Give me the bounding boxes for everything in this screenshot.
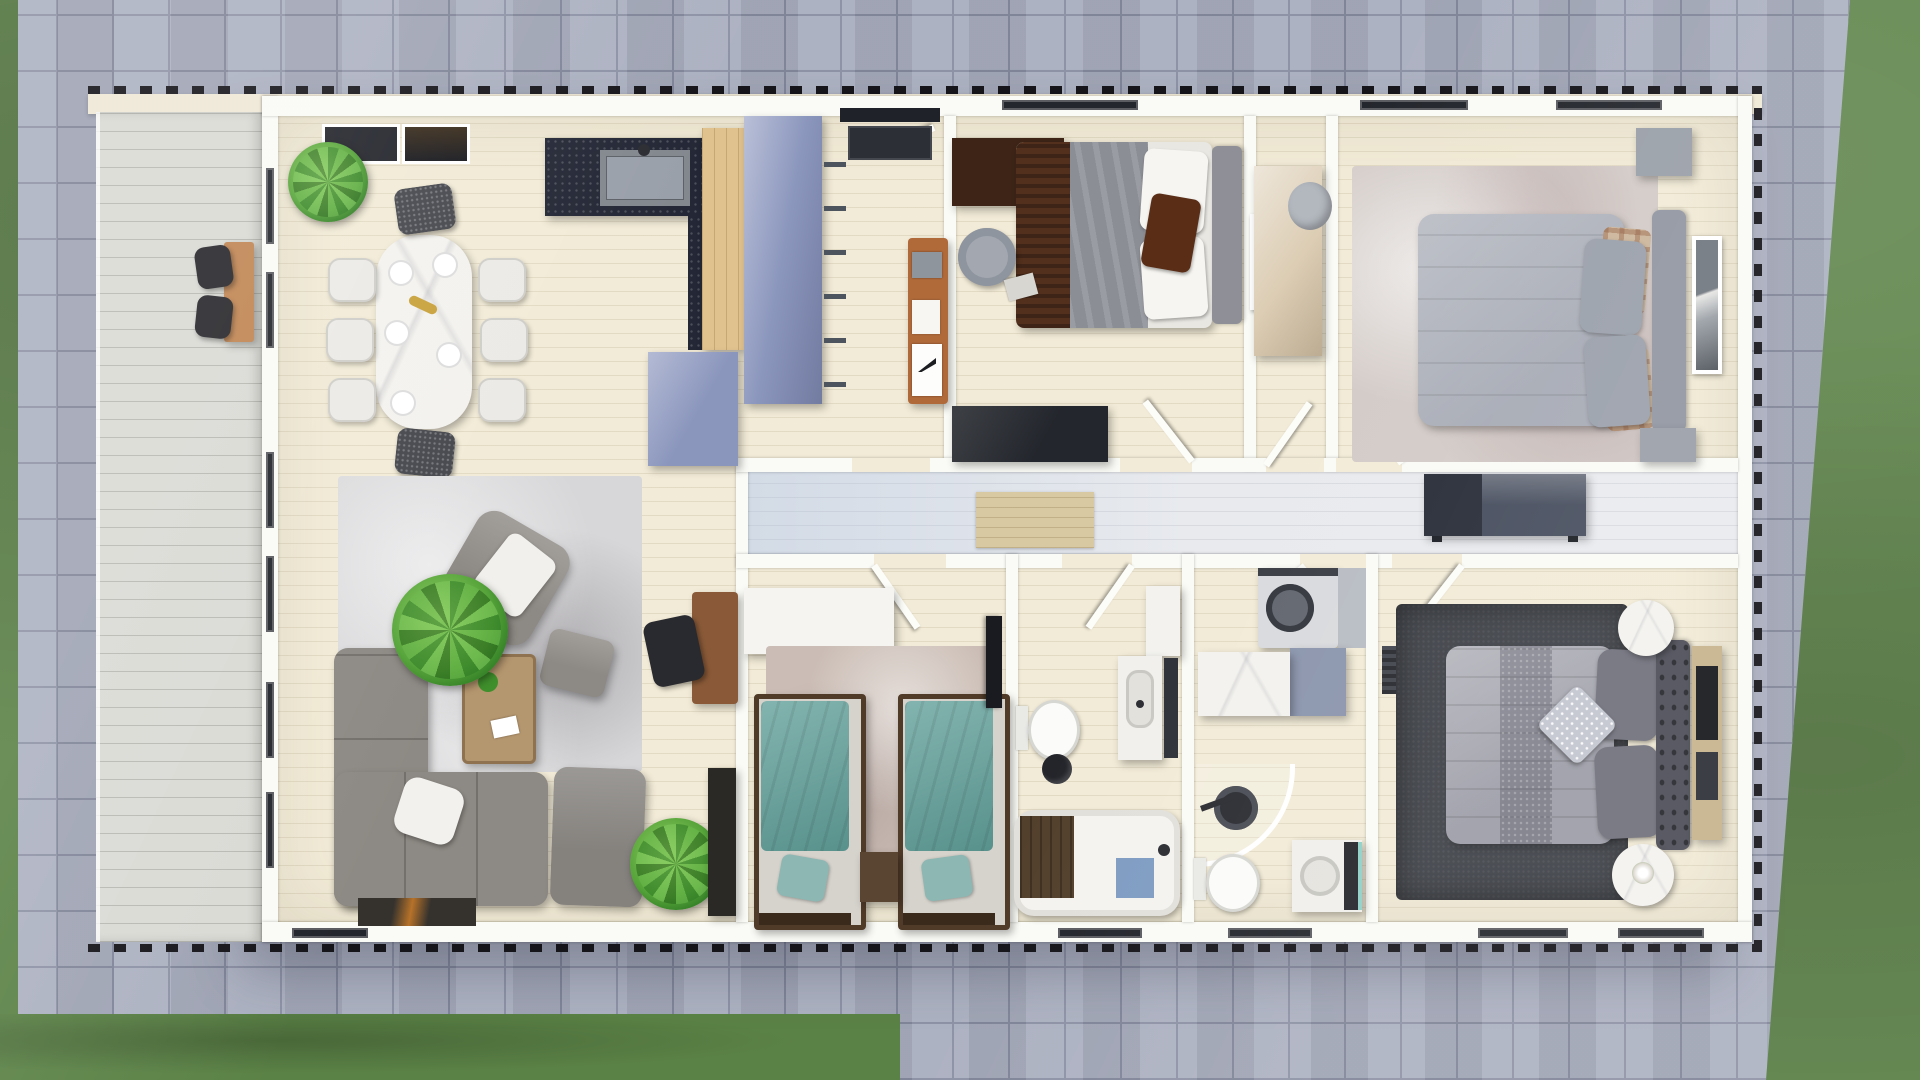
single-bed-left — [754, 694, 866, 930]
twin-nightstand — [860, 852, 898, 902]
wall-bath2-bedroom3 — [1366, 554, 1378, 922]
brown-knit-blanket — [1016, 142, 1074, 328]
entry-mat — [848, 126, 932, 160]
porch-chair — [193, 244, 234, 291]
dining-chair — [326, 318, 374, 362]
door-gap — [1266, 458, 1324, 472]
plate — [392, 392, 414, 414]
wall-tv — [986, 616, 1002, 708]
laundry-counter — [1338, 568, 1366, 648]
gray-duvet — [1070, 142, 1148, 328]
toilet — [1028, 700, 1080, 760]
bed-headboard — [1212, 146, 1242, 324]
door-gap — [874, 554, 946, 568]
laundry-basket — [1288, 182, 1332, 230]
window — [1058, 928, 1142, 938]
wall-closet-bedroom2 — [1326, 116, 1338, 470]
chaise-seat — [550, 766, 647, 907]
kitchen-faucet — [638, 144, 650, 156]
wire-rack — [824, 206, 846, 211]
door-gap — [1120, 458, 1192, 472]
nightstand — [1640, 428, 1696, 462]
media-dresser — [1692, 646, 1722, 840]
pantry-wall — [744, 116, 822, 404]
blue-side-cabinet — [1290, 648, 1346, 716]
dining-chair — [328, 378, 376, 422]
dining-chair — [478, 378, 526, 422]
shower-head — [1214, 786, 1258, 830]
corridor-sideboard — [1424, 474, 1586, 536]
window — [1556, 100, 1662, 110]
window — [1228, 928, 1312, 938]
porch-chair — [194, 294, 234, 340]
vanity-counter — [1118, 656, 1162, 760]
kitchen-sink — [600, 150, 690, 206]
round-side-table — [1618, 600, 1674, 656]
grass-lawn-bottom — [0, 1014, 900, 1080]
marble-island — [1198, 652, 1290, 716]
tall-white-cabinet — [1146, 586, 1180, 656]
window — [1002, 100, 1138, 110]
plate — [434, 254, 456, 276]
wall-right — [1738, 96, 1752, 942]
toilet — [1206, 854, 1260, 912]
window — [266, 452, 274, 528]
window — [266, 682, 274, 758]
plate — [386, 322, 408, 344]
wire-rack — [824, 382, 846, 387]
wall-tv — [952, 406, 1108, 462]
mirror-panel — [1164, 658, 1178, 758]
bathtub — [1014, 810, 1180, 916]
door-gap — [1392, 554, 1462, 568]
window — [266, 792, 274, 868]
white-wardrobe — [744, 588, 894, 654]
gray-pillow — [1583, 334, 1651, 428]
tub-faucet — [1158, 844, 1170, 856]
window — [292, 928, 368, 938]
dining-chair — [328, 258, 376, 302]
tufted-headboard — [1656, 640, 1690, 850]
window — [266, 272, 274, 348]
toilet-tank — [1194, 858, 1206, 900]
porch-glass-rail — [96, 112, 100, 942]
desk-papers — [912, 300, 940, 334]
dining-chair — [478, 258, 526, 302]
window — [1478, 928, 1568, 938]
office-chair — [958, 228, 1016, 286]
dining-chair-dark — [393, 182, 457, 236]
door-gap — [852, 458, 930, 472]
poster — [912, 344, 942, 396]
plate — [390, 262, 412, 284]
flower-vase — [1632, 862, 1654, 884]
bedroom2-headboard — [1652, 210, 1686, 432]
door-gap — [1300, 554, 1366, 568]
washing-machine — [1258, 568, 1338, 648]
tall-oak-cabinet — [702, 128, 744, 350]
single-bed-right — [898, 694, 1010, 930]
porch-deck — [96, 112, 262, 942]
teal-pillow — [920, 854, 973, 902]
leaning-canvas — [1692, 236, 1722, 374]
bath-mat — [1116, 858, 1154, 898]
window — [1360, 100, 1468, 110]
skylight-panel — [402, 124, 470, 164]
bath-tray — [1020, 816, 1074, 898]
wire-rack — [824, 338, 846, 343]
wall-bath1-bath2 — [1182, 554, 1194, 922]
teal-duvet — [761, 701, 849, 851]
door-mat — [358, 898, 476, 926]
toilet-tank — [1016, 706, 1028, 750]
dining-chair-dark — [394, 427, 456, 479]
roof-eave-right — [1754, 86, 1762, 952]
entry-door-threshold — [840, 108, 940, 122]
floorplan-scene — [0, 0, 1920, 1080]
fridge-unit — [648, 352, 738, 466]
corridor-mat — [976, 492, 1094, 548]
wire-rack — [824, 250, 846, 255]
roof-eave-bottom — [88, 944, 1762, 952]
nightstand — [1636, 128, 1692, 176]
vanity-sink — [1292, 840, 1362, 912]
plate — [438, 344, 460, 366]
roof-eave-top — [88, 86, 1762, 94]
desk-monitor — [912, 252, 942, 278]
dark-pillow — [1594, 744, 1663, 839]
wire-rack — [824, 294, 846, 299]
dark-cabinet — [708, 768, 736, 916]
door-gap — [1062, 554, 1132, 568]
knit-runner — [1500, 646, 1552, 844]
teal-pillow — [776, 853, 831, 903]
corridor-floor — [740, 470, 1738, 554]
gray-pillow — [1579, 238, 1647, 336]
palm-plant — [392, 574, 508, 686]
wire-rack — [824, 162, 846, 167]
window — [266, 168, 274, 244]
bed-footboard — [903, 913, 995, 925]
window — [1618, 928, 1704, 938]
waste-bin — [1042, 754, 1072, 784]
potted-plant — [288, 142, 368, 222]
bed-footboard — [759, 913, 851, 925]
window — [266, 556, 274, 632]
dining-chair — [480, 318, 528, 362]
teal-duvet — [905, 701, 993, 851]
